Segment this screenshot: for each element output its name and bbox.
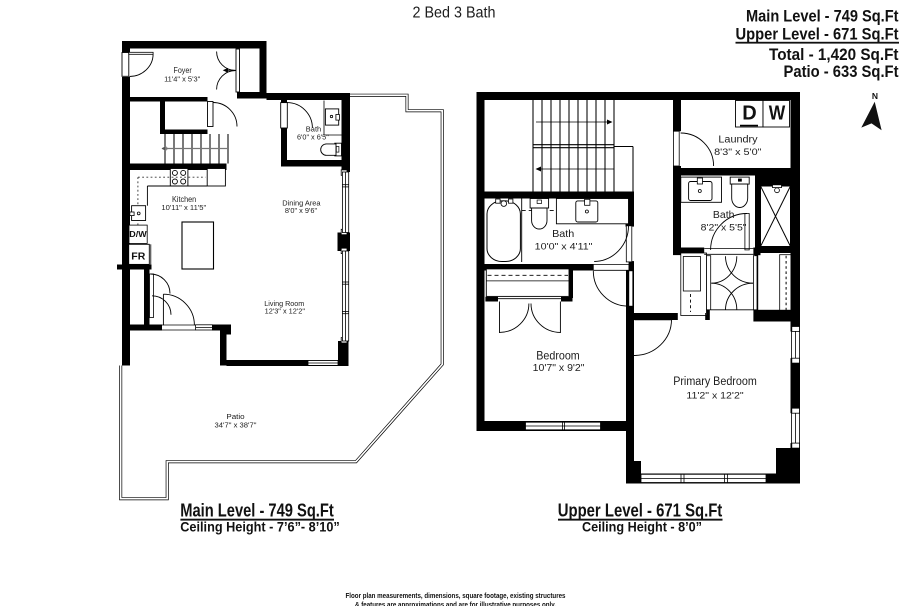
svg-text:11'2" x 12'2": 11'2" x 12'2" bbox=[686, 391, 743, 402]
svg-text:12'3" x 12'2": 12'3" x 12'2" bbox=[265, 306, 306, 315]
svg-text:& features are approximations: & features are approximations and are fo… bbox=[355, 600, 556, 606]
svg-text:FR: FR bbox=[131, 250, 145, 262]
svg-text:11'4" x 5'3": 11'4" x 5'3" bbox=[164, 75, 201, 84]
svg-text:10'7" x 9'2": 10'7" x 9'2" bbox=[533, 363, 585, 374]
svg-text:10'11" x 11'5": 10'11" x 11'5" bbox=[161, 203, 206, 212]
svg-text:Main Level - 749 Sq.Ft: Main Level - 749 Sq.Ft bbox=[180, 500, 334, 521]
svg-text:D/W: D/W bbox=[129, 229, 147, 239]
svg-text:Patio - 633 Sq.Ft: Patio - 633 Sq.Ft bbox=[784, 63, 899, 81]
svg-text:Laundry: Laundry bbox=[718, 134, 757, 145]
svg-text:2 Bed 3 Bath: 2 Bed 3 Bath bbox=[413, 5, 496, 22]
svg-text:Upper Level - 671 Sq.Ft: Upper Level - 671 Sq.Ft bbox=[736, 26, 899, 44]
svg-text:Ceiling Height - 7’6”- 8’10”: Ceiling Height - 7’6”- 8’10” bbox=[180, 520, 340, 535]
svg-text:D: D bbox=[742, 103, 756, 125]
svg-text:Total - 1,420 Sq.Ft: Total - 1,420 Sq.Ft bbox=[769, 46, 899, 64]
svg-text:6'0" x 6'5": 6'0" x 6'5" bbox=[297, 132, 329, 141]
svg-text:N: N bbox=[872, 91, 878, 101]
svg-text:34'7" x 38'7": 34'7" x 38'7" bbox=[215, 421, 257, 430]
svg-text:10'0" x 4'11": 10'0" x 4'11" bbox=[535, 241, 593, 252]
svg-text:Floor plan measurements, dimen: Floor plan measurements, dimensions, squ… bbox=[346, 591, 566, 600]
svg-text:Ceiling Height - 8’0”: Ceiling Height - 8’0” bbox=[582, 520, 702, 535]
svg-text:8'0" x 9'6": 8'0" x 9'6" bbox=[285, 206, 318, 215]
svg-text:8'2" x 5'5": 8'2" x 5'5" bbox=[701, 222, 747, 233]
svg-text:Bedroom: Bedroom bbox=[536, 348, 580, 362]
svg-text:Bath: Bath bbox=[552, 229, 574, 240]
svg-text:Main Level - 749 Sq.Ft: Main Level - 749 Sq.Ft bbox=[746, 8, 899, 26]
svg-text:8'3" x 5'0": 8'3" x 5'0" bbox=[714, 147, 761, 158]
svg-text:Upper Level - 671 Sq.Ft: Upper Level - 671 Sq.Ft bbox=[558, 500, 723, 521]
svg-text:W: W bbox=[769, 103, 786, 125]
svg-text:Bath: Bath bbox=[713, 210, 735, 221]
svg-text:Primary Bedroom: Primary Bedroom bbox=[673, 376, 757, 388]
